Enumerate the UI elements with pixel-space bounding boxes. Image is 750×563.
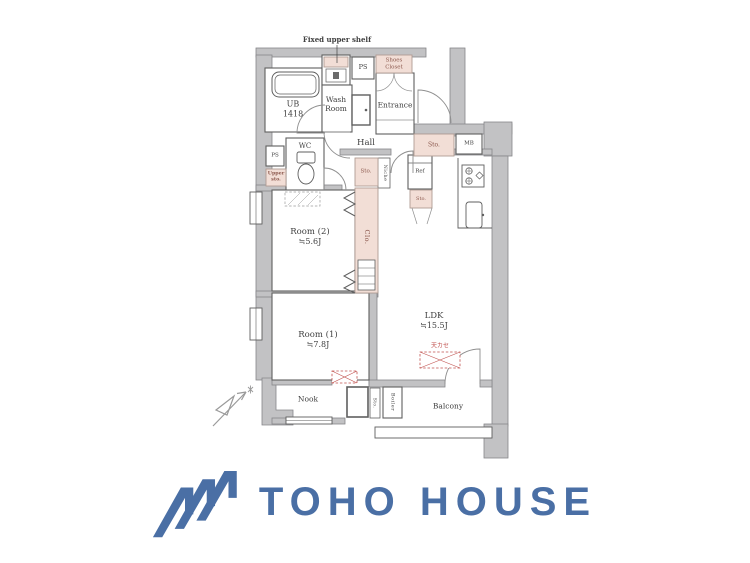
label-sto-nook: Sto. (372, 398, 377, 408)
label-upper-sto: Uppersto. (268, 171, 284, 183)
label-room2: Room (2)≒5.6J (290, 227, 329, 247)
label-tenkase: 天カセ (431, 342, 449, 349)
toho-house-logo: TOHO HOUSE (153, 464, 597, 540)
floorplan: Fixed upper shelf UB1418 WashRoom PS Sho… (248, 32, 523, 462)
toilet-bowl (298, 164, 314, 184)
label-fixed-upper-shelf: Fixed upper shelf (303, 36, 371, 44)
label-room1: Room (1)≒7.8J (298, 330, 337, 350)
label-sto-kitchen: Sto. (416, 196, 426, 202)
label-ref: Ref (415, 169, 424, 176)
label-ub: UB1418 (283, 99, 303, 118)
north-arrow (206, 384, 256, 434)
washer-dot (365, 109, 368, 112)
label-mb: MB (464, 141, 474, 148)
label-entrance: Entrance (378, 101, 413, 110)
label-hall: Hall (357, 138, 375, 148)
label-wc: WC (299, 142, 312, 150)
floorplan-drawing (248, 32, 523, 462)
label-boiler: Boiler (390, 393, 396, 411)
label-shoes-closet: ShoesCloset (385, 57, 403, 70)
label-balcony: Balcony (433, 402, 463, 411)
label-clo: Clo. (362, 230, 370, 245)
closet-ladder (358, 260, 375, 290)
logo-mark (153, 464, 241, 540)
label-niche: Niche (381, 165, 387, 182)
label-wash-room: WashRoom (325, 95, 347, 113)
toilet-tank (297, 152, 315, 163)
label-nook: Nook (298, 395, 318, 404)
label-ldk: LDK≒15.5J (420, 311, 448, 331)
floorplan-page: Fixed upper shelf UB1418 WashRoom PS Sho… (0, 0, 750, 563)
label-ps-top: PS (359, 64, 368, 72)
sink (466, 202, 482, 228)
label-sto-hall: Sto. (361, 169, 372, 176)
logo-text: TOHO HOUSE (259, 480, 597, 525)
label-sto-right: Sto. (428, 141, 440, 148)
label-ps-left: PS (271, 153, 278, 160)
